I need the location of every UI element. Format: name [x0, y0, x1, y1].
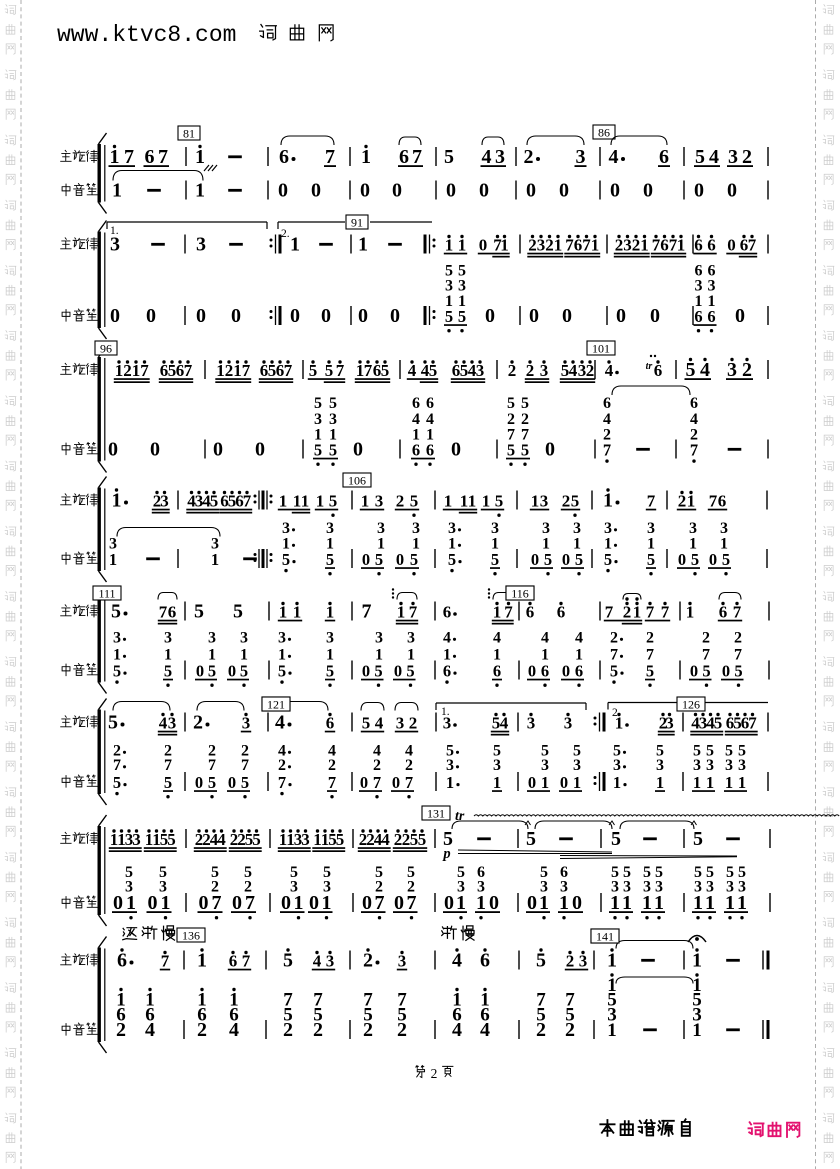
svg-text:116: 116 — [511, 587, 529, 601]
svg-text:0: 0 — [562, 305, 572, 327]
svg-text:1: 1 — [686, 603, 695, 622]
svg-text:5: 5 — [113, 773, 121, 792]
svg-text:5: 5 — [374, 662, 382, 681]
svg-text:6: 6 — [690, 395, 698, 412]
svg-text:1: 1 — [216, 361, 225, 380]
svg-text:5: 5 — [495, 492, 504, 511]
svg-text:1: 1 — [458, 236, 467, 255]
svg-text:4: 4 — [159, 714, 168, 733]
svg-text:7: 7 — [336, 361, 345, 380]
svg-text:3: 3 — [110, 234, 120, 256]
svg-text:p: p — [441, 846, 450, 862]
svg-text:2: 2 — [545, 236, 554, 255]
svg-text:3: 3 — [604, 520, 612, 537]
svg-text:7: 7 — [113, 757, 121, 774]
svg-text:4: 4 — [412, 411, 420, 428]
svg-text:0: 0 — [311, 180, 321, 202]
svg-text:6: 6 — [326, 714, 335, 733]
svg-text:5: 5 — [521, 395, 529, 412]
svg-text:5: 5 — [571, 492, 580, 511]
svg-text:4: 4 — [480, 1019, 490, 1041]
svg-text:0: 0 — [150, 439, 160, 461]
svg-text:1: 1 — [541, 773, 549, 792]
svg-text:6: 6 — [426, 441, 434, 460]
svg-text:3: 3 — [708, 278, 716, 295]
svg-text:5: 5 — [458, 307, 466, 326]
svg-text:5: 5 — [309, 361, 318, 380]
svg-text:2: 2 — [409, 714, 418, 733]
svg-text:4: 4 — [408, 361, 417, 380]
svg-text:7: 7 — [647, 492, 656, 511]
svg-text:5: 5 — [164, 773, 172, 792]
svg-text:2: 2 — [524, 146, 534, 168]
svg-text:0: 0 — [195, 773, 203, 792]
svg-text:2: 2 — [197, 1019, 207, 1041]
svg-text:5: 5 — [326, 662, 334, 681]
svg-text:7: 7 — [733, 603, 742, 622]
svg-text:2: 2 — [742, 146, 752, 168]
svg-text:81: 81 — [183, 127, 195, 141]
svg-text:1: 1 — [500, 236, 509, 255]
svg-text:7: 7 — [364, 361, 373, 380]
svg-text:3: 3 — [113, 630, 121, 647]
svg-text:0: 0 — [309, 892, 319, 914]
svg-text:3: 3 — [537, 236, 546, 255]
svg-text:3: 3 — [326, 952, 335, 971]
svg-text:3: 3 — [132, 830, 141, 849]
svg-text:3: 3 — [720, 520, 728, 537]
svg-text:7: 7 — [140, 361, 149, 380]
svg-text:3: 3 — [665, 714, 674, 733]
svg-text:5: 5 — [734, 662, 742, 681]
svg-text:4: 4 — [700, 359, 710, 381]
svg-text:2: 2 — [646, 630, 654, 647]
svg-text:5: 5 — [208, 773, 216, 792]
svg-text:3: 3 — [491, 520, 499, 537]
svg-text:1: 1 — [279, 603, 288, 622]
svg-text:0: 0 — [196, 662, 204, 681]
svg-text:6: 6 — [719, 603, 728, 622]
svg-text:1: 1 — [112, 490, 122, 512]
svg-text:0: 0 — [451, 439, 461, 461]
svg-text:1: 1 — [622, 892, 632, 914]
svg-text:4: 4 — [609, 146, 619, 168]
svg-text:2: 2 — [615, 236, 624, 255]
svg-text:7: 7 — [748, 236, 757, 255]
svg-text:2: 2 — [313, 1019, 323, 1041]
svg-text:7: 7 — [161, 952, 170, 971]
svg-text:1: 1 — [476, 892, 486, 914]
svg-text:3: 3 — [375, 492, 384, 511]
svg-text:3: 3 — [476, 361, 485, 380]
svg-text:0: 0 — [485, 305, 495, 327]
svg-text:1: 1 — [126, 892, 136, 914]
svg-text:1: 1 — [531, 492, 540, 511]
svg-text:1: 1 — [738, 773, 746, 792]
svg-text:5: 5 — [445, 307, 453, 326]
svg-text:5: 5 — [521, 441, 529, 460]
svg-text:7: 7 — [164, 757, 172, 774]
svg-text:2: 2 — [526, 361, 535, 380]
svg-text:1: 1 — [591, 236, 600, 255]
svg-text:0: 0 — [735, 305, 745, 327]
svg-text:7: 7 — [124, 146, 134, 168]
svg-text:6: 6 — [493, 662, 501, 681]
svg-text:3: 3 — [377, 520, 385, 537]
svg-text:1: 1 — [326, 603, 335, 622]
svg-text:3: 3 — [728, 146, 738, 168]
svg-text:4: 4 — [575, 630, 583, 647]
svg-text:106: 106 — [348, 474, 366, 488]
svg-text:3: 3 — [329, 411, 337, 428]
svg-text:1: 1 — [573, 773, 581, 792]
svg-text:5: 5 — [252, 830, 261, 849]
svg-text:5: 5 — [278, 662, 286, 681]
svg-text:1: 1 — [693, 892, 703, 914]
svg-text:4: 4 — [482, 146, 492, 168]
svg-text:5: 5 — [695, 146, 705, 168]
svg-text:3: 3 — [407, 630, 415, 647]
svg-text:3: 3 — [541, 757, 549, 774]
svg-text:3: 3 — [495, 146, 505, 168]
svg-text:7: 7 — [412, 146, 422, 168]
svg-text:5: 5 — [610, 662, 618, 681]
svg-text:0: 0 — [228, 662, 236, 681]
svg-text:3: 3 — [656, 757, 664, 774]
svg-text:1: 1 — [539, 892, 549, 914]
svg-text:2: 2 — [566, 952, 575, 971]
svg-text:0: 0 — [709, 550, 717, 569]
svg-text:1: 1 — [361, 146, 371, 168]
svg-text:0: 0 — [196, 305, 206, 327]
svg-text:0: 0 — [255, 439, 265, 461]
svg-text:7: 7 — [242, 952, 251, 971]
svg-text:0: 0 — [527, 892, 537, 914]
svg-text:0: 0 — [446, 180, 456, 202]
svg-text:6: 6 — [557, 603, 566, 622]
svg-text:3: 3 — [240, 630, 248, 647]
svg-text:4: 4 — [541, 630, 549, 647]
svg-text:0: 0 — [727, 180, 737, 202]
svg-text:6: 6 — [526, 603, 535, 622]
svg-text:5: 5 — [611, 828, 621, 850]
svg-text:1: 1 — [687, 492, 696, 511]
svg-text:1: 1 — [112, 180, 122, 202]
svg-text:5: 5 — [283, 950, 293, 972]
svg-text:5: 5 — [111, 601, 121, 623]
svg-text:1: 1 — [161, 892, 171, 914]
svg-text:www.ktvc8.com: www.ktvc8.com — [57, 22, 236, 48]
svg-text:3: 3 — [493, 757, 501, 774]
svg-text:3: 3 — [326, 630, 334, 647]
svg-text:0: 0 — [690, 662, 698, 681]
svg-text:1: 1 — [445, 236, 454, 255]
svg-text:5: 5 — [241, 773, 249, 792]
svg-text:0: 0 — [396, 550, 404, 569]
svg-text:6: 6 — [168, 603, 177, 622]
svg-text:7: 7 — [243, 492, 252, 511]
svg-text:0: 0 — [362, 662, 370, 681]
svg-text:1: 1 — [361, 492, 370, 511]
svg-text:6: 6 — [694, 307, 702, 326]
svg-text:6: 6 — [707, 236, 716, 255]
svg-text:7: 7 — [748, 714, 757, 733]
svg-text:5: 5 — [507, 441, 515, 460]
svg-text:0: 0 — [110, 305, 120, 327]
svg-text:3: 3 — [564, 714, 573, 733]
svg-text:5: 5 — [714, 714, 723, 733]
svg-text:1: 1 — [290, 234, 300, 256]
svg-text:7: 7 — [603, 441, 611, 460]
svg-text:5: 5 — [329, 395, 337, 412]
svg-text:3: 3 — [314, 411, 322, 428]
svg-text:1: 1 — [132, 361, 141, 380]
svg-text:2: 2 — [734, 630, 742, 647]
svg-text:141: 141 — [596, 930, 614, 944]
svg-text:0: 0 — [228, 773, 236, 792]
svg-text:5: 5 — [381, 361, 390, 380]
svg-text:0: 0 — [390, 305, 400, 327]
svg-text:2: 2 — [586, 361, 595, 380]
svg-text:1: 1 — [294, 892, 304, 914]
svg-text:2: 2 — [116, 1019, 126, 1041]
svg-text:7: 7 — [690, 441, 698, 460]
svg-text:5: 5 — [448, 550, 456, 569]
svg-text:7: 7 — [661, 603, 670, 622]
svg-text:3: 3 — [540, 361, 549, 380]
svg-text:2: 2 — [193, 712, 203, 734]
svg-text:3: 3 — [396, 714, 405, 733]
svg-text:3: 3 — [168, 714, 177, 733]
svg-text:1: 1 — [456, 892, 466, 914]
svg-text:101: 101 — [592, 342, 610, 356]
svg-text:5: 5 — [113, 662, 121, 681]
svg-text:1: 1 — [725, 892, 735, 914]
svg-text:5: 5 — [375, 550, 383, 569]
svg-text:3: 3 — [164, 630, 172, 647]
svg-text:0: 0 — [394, 662, 402, 681]
svg-text:0: 0 — [560, 773, 568, 792]
svg-text:0: 0 — [528, 773, 536, 792]
svg-text:1: 1 — [737, 892, 747, 914]
svg-text:5: 5 — [526, 828, 536, 850]
svg-text:5: 5 — [722, 550, 730, 569]
svg-text:1: 1 — [706, 773, 714, 792]
svg-text:7: 7 — [325, 146, 335, 168]
svg-text:1: 1 — [301, 492, 310, 511]
svg-text:0: 0 — [358, 305, 368, 327]
svg-text:0: 0 — [392, 180, 402, 202]
svg-text:4: 4 — [690, 411, 698, 428]
svg-text:2: 2 — [508, 361, 517, 380]
svg-text:2: 2 — [431, 1066, 438, 1081]
svg-text:3: 3 — [282, 520, 290, 537]
svg-text:5: 5 — [418, 830, 427, 849]
svg-text:2: 2 — [278, 757, 286, 774]
svg-text:6: 6 — [443, 662, 451, 681]
svg-text:0: 0 — [479, 180, 489, 202]
svg-text:3: 3 — [398, 952, 407, 971]
svg-text:1: 1 — [115, 361, 124, 380]
svg-text:3: 3 — [326, 520, 334, 537]
svg-text:5: 5 — [329, 441, 337, 460]
svg-text:5: 5 — [240, 662, 248, 681]
svg-text:6: 6 — [659, 146, 669, 168]
svg-text:6: 6 — [229, 952, 238, 971]
svg-text:7: 7 — [184, 361, 193, 380]
svg-text:96: 96 — [100, 342, 112, 356]
svg-text:0: 0 — [360, 180, 370, 202]
svg-text:5: 5 — [406, 662, 414, 681]
svg-text:4: 4 — [217, 830, 226, 849]
svg-text:4: 4 — [229, 1019, 239, 1041]
svg-text:0: 0 — [572, 892, 582, 914]
svg-text:91: 91 — [351, 216, 363, 230]
svg-text:1: 1 — [482, 492, 491, 511]
svg-text:2: 2 — [632, 236, 641, 255]
svg-text:5: 5 — [536, 950, 546, 972]
svg-text:4: 4 — [381, 830, 390, 849]
svg-text:2: 2 — [565, 1019, 575, 1041]
svg-text:5: 5 — [429, 361, 438, 380]
svg-text:6: 6 — [399, 146, 409, 168]
svg-text:1: 1 — [279, 492, 288, 511]
svg-text:1: 1 — [642, 892, 652, 914]
svg-text:0: 0 — [643, 180, 653, 202]
svg-text:3: 3 — [242, 714, 251, 733]
svg-text:3: 3 — [448, 520, 456, 537]
svg-text:2: 2 — [363, 950, 373, 972]
svg-text:5: 5 — [410, 492, 419, 511]
svg-text:3: 3 — [647, 520, 655, 537]
svg-text:2: 2 — [123, 361, 132, 380]
svg-text:1: 1 — [559, 892, 569, 914]
svg-text:6: 6 — [654, 361, 663, 380]
svg-text:3: 3 — [725, 757, 733, 774]
svg-text:2: 2 — [742, 359, 752, 381]
svg-text:5: 5 — [325, 361, 334, 380]
svg-text:4: 4 — [569, 361, 578, 380]
svg-text:121: 121 — [267, 698, 285, 712]
svg-text:5: 5 — [691, 550, 699, 569]
svg-text:1: 1 — [109, 550, 117, 569]
svg-text:7: 7 — [504, 603, 513, 622]
svg-text:1: 1 — [397, 603, 406, 622]
svg-text:2: 2 — [396, 492, 405, 511]
svg-text:0: 0 — [394, 892, 404, 914]
svg-text:3: 3 — [458, 278, 466, 295]
svg-text:7: 7 — [159, 603, 168, 622]
svg-text:0: 0 — [362, 550, 370, 569]
svg-text:6: 6 — [412, 395, 420, 412]
svg-text:2: 2 — [678, 492, 687, 511]
svg-text:0: 0 — [562, 550, 570, 569]
svg-text:1: 1 — [233, 361, 242, 380]
svg-text:0: 0 — [545, 439, 555, 461]
svg-text:5: 5 — [314, 441, 322, 460]
svg-text:3: 3 — [727, 359, 737, 381]
svg-text:1: 1 — [607, 1020, 617, 1041]
svg-text:1: 1 — [692, 1020, 702, 1041]
svg-text:0: 0 — [616, 305, 626, 327]
svg-text:1: 1 — [322, 892, 332, 914]
svg-text:3: 3 — [375, 630, 383, 647]
svg-text:6: 6 — [707, 307, 715, 326]
svg-text:0: 0 — [529, 305, 539, 327]
svg-text:2: 2 — [283, 1019, 293, 1041]
svg-text:2: 2 — [536, 1019, 546, 1041]
svg-text:4: 4 — [275, 712, 285, 734]
svg-text:5: 5 — [491, 550, 499, 569]
svg-text:3: 3 — [695, 278, 703, 295]
svg-text:0: 0 — [108, 439, 118, 461]
svg-text:5: 5 — [314, 395, 322, 412]
svg-text:1: 1 — [654, 892, 664, 914]
svg-text:4: 4 — [145, 1019, 155, 1041]
svg-text:0: 0 — [362, 892, 372, 914]
svg-text:6: 6 — [279, 146, 289, 168]
svg-text:6: 6 — [443, 603, 452, 622]
svg-text:131: 131 — [427, 807, 445, 821]
svg-text:2: 2 — [225, 361, 234, 380]
svg-text:7: 7 — [709, 492, 718, 511]
svg-text:5: 5 — [208, 662, 216, 681]
svg-text:2: 2 — [702, 630, 710, 647]
svg-text:0: 0 — [526, 180, 536, 202]
svg-text:5: 5 — [329, 492, 338, 511]
svg-text:3: 3 — [613, 757, 621, 774]
svg-text:1: 1 — [195, 180, 205, 202]
svg-text:1: 1 — [468, 492, 477, 511]
svg-text:1: 1 — [692, 950, 702, 972]
svg-text:7: 7 — [362, 601, 372, 623]
svg-text:0: 0 — [199, 892, 209, 914]
svg-text:0: 0 — [727, 236, 736, 255]
svg-text:1: 1 — [493, 603, 502, 622]
svg-text:2: 2 — [562, 492, 571, 511]
svg-text:7: 7 — [375, 892, 385, 914]
svg-text:5: 5 — [507, 395, 515, 412]
svg-text:2: 2 — [363, 1019, 373, 1041]
svg-text:3: 3 — [689, 520, 697, 537]
svg-text:1: 1 — [444, 492, 453, 511]
svg-text:1: 1 — [316, 492, 325, 511]
svg-text:0: 0 — [321, 305, 331, 327]
svg-text:3: 3 — [412, 520, 420, 537]
svg-text:1: 1 — [615, 714, 624, 733]
svg-text:3: 3 — [445, 278, 453, 295]
svg-text:7: 7 — [284, 361, 293, 380]
svg-text:0: 0 — [479, 236, 488, 255]
svg-text:5: 5 — [164, 662, 172, 681]
svg-text:7: 7 — [646, 603, 655, 622]
svg-text:5: 5 — [336, 830, 345, 849]
svg-text:0: 0 — [650, 305, 660, 327]
svg-text:7: 7 — [407, 892, 417, 914]
svg-text:1: 1 — [603, 490, 613, 512]
svg-text:7: 7 — [328, 773, 336, 792]
svg-text:6: 6 — [694, 236, 703, 255]
svg-text:7: 7 — [278, 773, 286, 792]
svg-text:0: 0 — [559, 180, 569, 202]
svg-text:5: 5 — [194, 601, 204, 623]
svg-text:5: 5 — [686, 359, 696, 381]
svg-text:6: 6 — [426, 395, 434, 412]
svg-text:0: 0 — [231, 305, 241, 327]
svg-text:4: 4 — [603, 411, 611, 428]
svg-text:1: 1 — [493, 773, 501, 792]
svg-text:0: 0 — [281, 892, 291, 914]
